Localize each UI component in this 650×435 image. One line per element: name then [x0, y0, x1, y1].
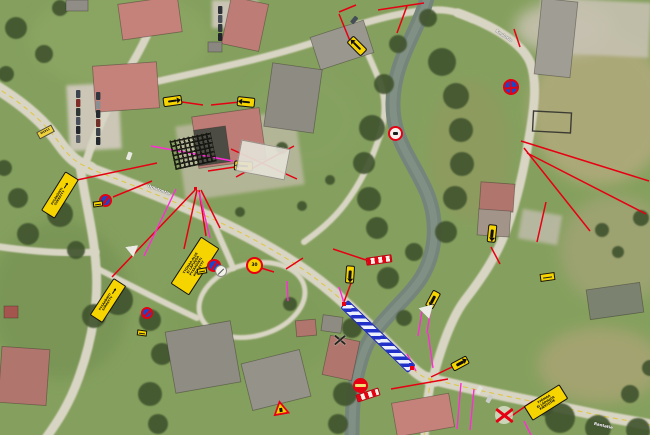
building — [534, 0, 578, 78]
tree — [389, 35, 407, 53]
building — [4, 306, 18, 318]
building — [477, 209, 511, 237]
tree — [435, 221, 457, 243]
parked-car — [218, 15, 222, 23]
parked-car — [76, 135, 80, 143]
tree — [235, 207, 245, 217]
tree — [333, 382, 357, 406]
tree — [283, 297, 297, 311]
tree — [450, 152, 474, 176]
tree — [443, 186, 467, 210]
tree — [633, 210, 649, 226]
parked-car — [76, 117, 80, 125]
tree — [67, 241, 85, 259]
parked-car — [76, 99, 80, 107]
tree — [325, 175, 335, 185]
parked-car — [76, 108, 80, 116]
tree — [328, 414, 348, 434]
parked-car — [218, 24, 222, 32]
building — [295, 319, 316, 337]
tree — [366, 217, 388, 239]
tree — [428, 48, 456, 76]
tree — [5, 17, 27, 39]
parked-car — [76, 126, 80, 134]
parked-car — [96, 128, 100, 136]
building — [321, 315, 343, 334]
tree — [139, 309, 161, 331]
tree — [396, 310, 412, 326]
building — [0, 346, 50, 405]
tree — [103, 285, 133, 315]
parked-car — [218, 6, 222, 14]
building — [208, 42, 222, 52]
building — [165, 321, 241, 394]
tree — [419, 9, 437, 27]
parked-car — [96, 92, 100, 100]
building — [92, 62, 159, 112]
tree — [374, 74, 394, 94]
parked-car — [96, 137, 100, 145]
tree — [47, 201, 73, 227]
parked-car — [96, 110, 100, 118]
parked-car — [96, 119, 100, 127]
tree — [17, 223, 39, 245]
tree — [621, 385, 639, 403]
parked-car — [218, 33, 222, 41]
tree — [138, 382, 162, 406]
building — [264, 63, 322, 133]
parked-car — [96, 101, 100, 109]
tree — [443, 83, 469, 109]
tree — [377, 267, 399, 289]
tree — [297, 201, 307, 211]
tree — [52, 0, 68, 16]
tree — [342, 318, 362, 338]
aerial-traffic-plan-map: PYSÄKÖINTISIIRRETTYPYSÄKÖINTISIIRRETTYTY… — [0, 0, 650, 435]
tree — [148, 414, 168, 434]
tree — [357, 187, 381, 211]
tree — [449, 118, 473, 142]
tree — [612, 246, 624, 258]
tree — [8, 188, 28, 208]
building — [479, 182, 515, 212]
tree — [405, 243, 423, 261]
tree — [537, 400, 553, 416]
magenta-leader-line — [287, 281, 288, 301]
parked-car — [76, 90, 80, 98]
tree — [353, 152, 375, 174]
building — [66, 0, 88, 11]
tree — [35, 45, 53, 63]
tree — [82, 304, 106, 328]
tree — [359, 115, 385, 141]
aerial-photo-base-layer — [0, 0, 650, 435]
tree — [595, 223, 609, 237]
